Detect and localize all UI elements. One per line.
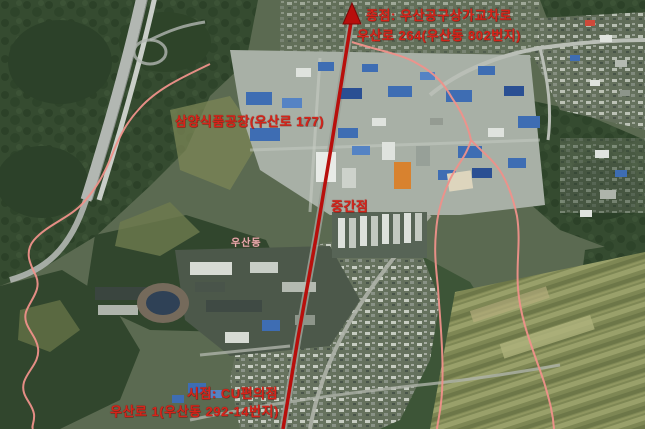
ballfield xyxy=(447,170,473,191)
label-district-usandong: 우산동 xyxy=(231,234,262,249)
label-mid-point: 중간점 xyxy=(331,196,368,215)
apartment-blocks xyxy=(332,212,427,258)
label-end-point-line1: 종점: 우산공구상가교차로 xyxy=(366,5,512,24)
label-start-point-line1: 시점: CU편의점 xyxy=(187,383,278,402)
satellite-map: 종점: 우산공구상가교차로 우산로 264(우산동 802번지) 삼양식품공장(… xyxy=(0,0,645,429)
label-factory: 삼양식품공장(우산로 177) xyxy=(175,111,324,130)
orange-warehouse xyxy=(394,162,411,189)
label-end-point-line2: 우산로 264(우산동 802번지) xyxy=(357,25,521,44)
label-start-point-line2: 우산로 1(우산동 292-14번지) xyxy=(110,401,279,420)
map-imagery xyxy=(0,0,645,429)
